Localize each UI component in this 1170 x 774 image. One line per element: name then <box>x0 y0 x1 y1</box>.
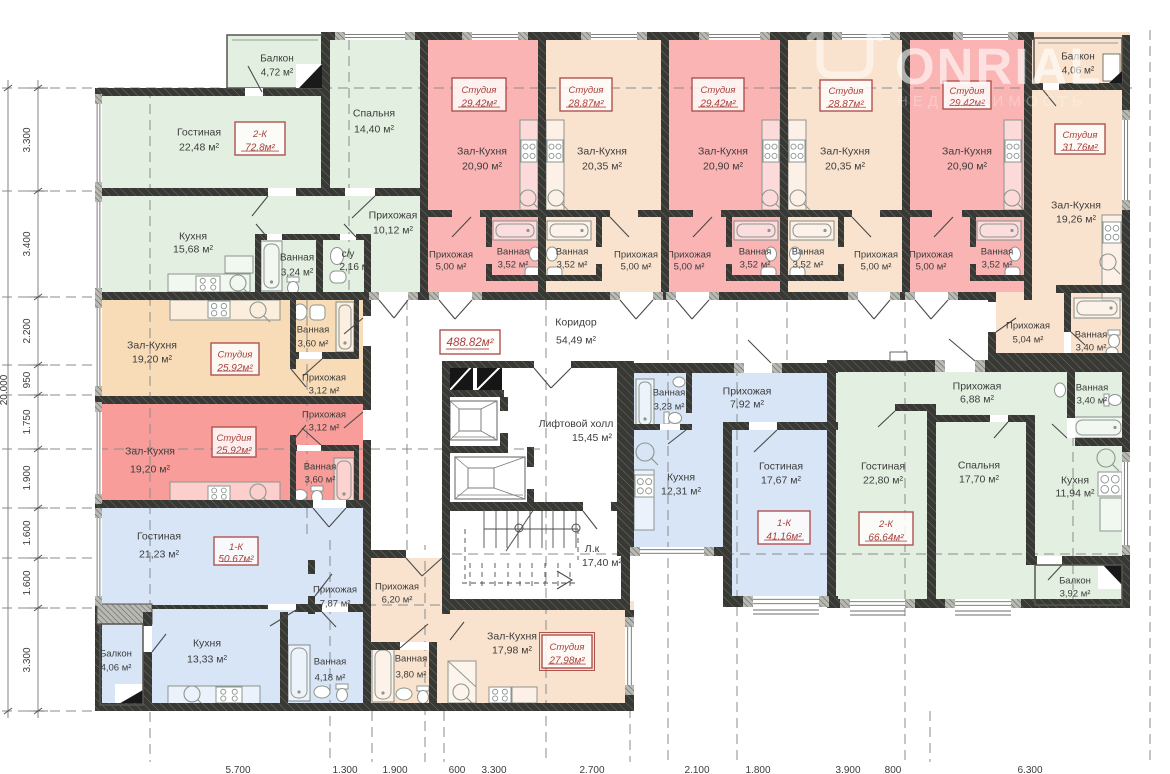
svg-text:17,67 м²: 17,67 м² <box>761 475 801 487</box>
svg-text:20,90 м²: 20,90 м² <box>703 161 743 173</box>
svg-text:Ванная: Ванная <box>304 462 337 473</box>
svg-text:Прихожая: Прихожая <box>1006 321 1050 332</box>
svg-text:1.600: 1.600 <box>22 520 33 545</box>
svg-text:6.300: 6.300 <box>1017 765 1042 774</box>
svg-text:22,48 м²: 22,48 м² <box>179 142 219 154</box>
svg-text:20.000: 20.000 <box>0 374 10 405</box>
svg-text:Прихожая: Прихожая <box>854 250 898 261</box>
svg-text:800: 800 <box>885 765 902 774</box>
svg-text:41.16м²: 41.16м² <box>766 532 802 543</box>
svg-text:3,12 м²: 3,12 м² <box>309 423 340 434</box>
svg-text:Прихожая: Прихожая <box>614 250 658 261</box>
svg-text:3,52 м²: 3,52 м² <box>498 260 529 271</box>
svg-text:19,20 м²: 19,20 м² <box>132 354 172 366</box>
svg-text:28.87м²: 28.87м² <box>567 99 604 110</box>
svg-text:Прихожая: Прихожая <box>375 582 419 593</box>
svg-text:Ванная: Ванная <box>739 247 772 258</box>
svg-text:3,52 м²: 3,52 м² <box>982 260 1013 271</box>
svg-text:3.300: 3.300 <box>481 765 506 774</box>
svg-text:3.300: 3.300 <box>22 647 33 672</box>
svg-text:Ванная: Ванная <box>1076 383 1109 394</box>
svg-text:4,06 м²: 4,06 м² <box>101 663 132 674</box>
svg-text:17,70 м²: 17,70 м² <box>959 474 999 486</box>
svg-text:Прихожая: Прихожая <box>369 210 418 222</box>
svg-text:1-К: 1-К <box>777 518 792 529</box>
svg-text:Балкон: Балкон <box>260 54 294 65</box>
svg-text:950: 950 <box>22 371 33 388</box>
svg-text:66.64м²: 66.64м² <box>868 533 904 544</box>
svg-text:31.76м²: 31.76м² <box>1062 142 1098 153</box>
svg-text:3,52 м²: 3,52 м² <box>793 260 824 271</box>
svg-text:Спальня: Спальня <box>958 460 1000 472</box>
svg-text:19,20 м²: 19,20 м² <box>130 464 170 476</box>
svg-text:Гостиная: Гостиная <box>759 461 803 473</box>
svg-text:Студия: Студия <box>462 85 497 96</box>
svg-text:Коридор: Коридор <box>555 317 597 329</box>
svg-text:Студия: Студия <box>217 433 252 444</box>
svg-text:Студия: Студия <box>569 85 604 96</box>
svg-text:Ванная: Ванная <box>297 325 330 336</box>
svg-text:Ванная: Ванная <box>981 247 1014 258</box>
svg-text:3,12 м²: 3,12 м² <box>309 386 340 397</box>
svg-text:10,12 м²: 10,12 м² <box>373 225 413 237</box>
svg-text:20,35 м²: 20,35 м² <box>582 161 622 173</box>
svg-text:488.82м²: 488.82м² <box>447 337 495 349</box>
svg-text:17,40 м²: 17,40 м² <box>582 557 622 569</box>
svg-text:3,52 м²: 3,52 м² <box>557 260 588 271</box>
svg-text:Гостиная: Гостиная <box>177 127 221 139</box>
svg-text:2.200: 2.200 <box>22 318 33 343</box>
svg-text:3.300: 3.300 <box>22 127 33 152</box>
svg-text:5,00 м²: 5,00 м² <box>436 262 467 273</box>
svg-text:1-К: 1-К <box>229 542 244 553</box>
svg-text:1.300: 1.300 <box>332 765 357 774</box>
svg-text:Ванная: Ванная <box>314 657 347 668</box>
svg-text:3,40 м²: 3,40 м² <box>1077 396 1108 407</box>
svg-text:7,92 м²: 7,92 м² <box>730 399 765 411</box>
svg-text:3,80 м²: 3,80 м² <box>396 670 427 681</box>
svg-text:3,24 м²: 3,24 м² <box>281 268 314 279</box>
svg-text:1.750: 1.750 <box>22 409 33 434</box>
svg-text:21,23 м²: 21,23 м² <box>139 549 179 561</box>
svg-text:Кухня: Кухня <box>667 472 695 484</box>
svg-text:29.42м²: 29.42м² <box>460 99 497 110</box>
svg-text:72.8м²: 72.8м² <box>245 143 275 154</box>
svg-text:25.92м²: 25.92м² <box>215 445 252 456</box>
svg-text:Ванная: Ванная <box>395 654 428 665</box>
svg-text:28.87м²: 28.87м² <box>827 99 864 110</box>
svg-text:2-К: 2-К <box>252 129 268 140</box>
svg-text:3,40 м²: 3,40 м² <box>1076 343 1107 354</box>
svg-text:6,20 м²: 6,20 м² <box>382 595 413 606</box>
svg-text:Прихожая: Прихожая <box>667 250 711 261</box>
svg-text:19,26 м²: 19,26 м² <box>1056 214 1096 226</box>
svg-text:Прихожая: Прихожая <box>302 373 346 384</box>
svg-text:7,87 м²: 7,87 м² <box>320 599 351 610</box>
svg-text:Балкон: Балкон <box>1059 576 1091 587</box>
svg-text:5.700: 5.700 <box>225 765 250 774</box>
svg-text:ONRIAL: ONRIAL <box>895 38 1102 95</box>
svg-text:12,31 м²: 12,31 м² <box>661 486 701 498</box>
svg-text:Студия: Студия <box>550 642 585 653</box>
svg-text:Ванная: Ванная <box>1075 330 1108 341</box>
svg-text:3,52 м²: 3,52 м² <box>740 260 771 271</box>
svg-text:Прихожая: Прихожая <box>953 381 1002 393</box>
svg-text:5,00 м²: 5,00 м² <box>916 262 947 273</box>
svg-text:4,72 м²: 4,72 м² <box>261 68 294 79</box>
svg-text:3,60 м²: 3,60 м² <box>298 339 329 350</box>
svg-text:с/у: с/у <box>342 249 355 260</box>
svg-text:Зал-Кухня: Зал-Кухня <box>457 146 507 158</box>
svg-text:Зал-Кухня: Зал-Кухня <box>577 146 627 158</box>
svg-text:Студия: Студия <box>829 86 864 97</box>
svg-text:5,00 м²: 5,00 м² <box>861 262 892 273</box>
svg-text:50.67м²: 50.67м² <box>218 554 254 565</box>
svg-text:Прихожая: Прихожая <box>313 585 357 596</box>
svg-text:Кухня: Кухня <box>179 231 207 243</box>
svg-text:20,90 м²: 20,90 м² <box>462 161 502 173</box>
svg-text:15,68 м²: 15,68 м² <box>173 244 213 256</box>
svg-text:600: 600 <box>449 765 466 774</box>
svg-text:Балкон: Балкон <box>100 649 132 660</box>
svg-text:Зал-Кухня: Зал-Кухня <box>487 631 537 643</box>
svg-text:3,23 м²: 3,23 м² <box>654 402 685 413</box>
svg-text:Спальня: Спальня <box>353 108 395 120</box>
svg-text:Зал-Кухня: Зал-Кухня <box>125 446 175 458</box>
svg-text:1.800: 1.800 <box>745 765 770 774</box>
svg-text:Зал-Кухня: Зал-Кухня <box>820 146 870 158</box>
svg-text:5,00 м²: 5,00 м² <box>621 262 652 273</box>
svg-text:1.900: 1.900 <box>382 765 407 774</box>
svg-text:Ванная: Ванная <box>653 388 686 399</box>
svg-text:Прихожая: Прихожая <box>302 410 346 421</box>
svg-text:14,40 м²: 14,40 м² <box>354 124 394 136</box>
svg-text:27.98м²: 27.98м² <box>548 656 585 667</box>
svg-text:2-К: 2-К <box>878 519 894 530</box>
svg-text:Зал-Кухня: Зал-Кухня <box>1051 200 1101 212</box>
svg-text:Зал-Кухня: Зал-Кухня <box>942 146 992 158</box>
svg-text:20,35 м²: 20,35 м² <box>825 161 865 173</box>
svg-text:Прихожая: Прихожая <box>723 386 772 398</box>
svg-text:3.900: 3.900 <box>835 765 860 774</box>
svg-text:17,98 м²: 17,98 м² <box>492 645 532 657</box>
svg-text:1.900: 1.900 <box>22 465 33 490</box>
svg-text:Студия: Студия <box>1063 130 1098 141</box>
svg-text:Гостиная: Гостиная <box>137 531 181 543</box>
svg-text:22,80 м²: 22,80 м² <box>863 475 903 487</box>
svg-text:3,92 м²: 3,92 м² <box>1060 589 1091 600</box>
svg-text:Студия: Студия <box>701 85 736 96</box>
svg-text:29.42м²: 29.42м² <box>699 99 736 110</box>
svg-text:3.400: 3.400 <box>22 231 33 256</box>
svg-text:Прихожая: Прихожая <box>909 250 953 261</box>
svg-text:1.600: 1.600 <box>22 570 33 595</box>
svg-text:5,00 м²: 5,00 м² <box>674 262 705 273</box>
svg-text:НЕДВИЖИМОСТЬ: НЕДВИЖИМОСТЬ <box>897 93 1087 110</box>
svg-text:6,88 м²: 6,88 м² <box>960 394 995 406</box>
svg-text:25.92м²: 25.92м² <box>216 363 253 374</box>
svg-text:15,45 м²: 15,45 м² <box>572 432 612 444</box>
svg-text:Гостиная: Гостиная <box>861 461 905 473</box>
svg-text:Ванная: Ванная <box>280 253 314 264</box>
svg-text:Зал-Кухня: Зал-Кухня <box>698 146 748 158</box>
svg-text:Л.к: Л.к <box>585 543 600 555</box>
svg-text:Зал-Кухня: Зал-Кухня <box>127 340 177 352</box>
svg-text:11,94 м²: 11,94 м² <box>1055 488 1095 500</box>
svg-text:Ванная: Ванная <box>556 247 589 258</box>
svg-text:3,60 м²: 3,60 м² <box>305 475 336 486</box>
svg-text:Студия: Студия <box>218 350 253 361</box>
svg-text:Лифтовой холл: Лифтовой холл <box>539 418 614 430</box>
svg-text:2.700: 2.700 <box>579 765 604 774</box>
svg-text:Кухня: Кухня <box>193 638 221 650</box>
svg-text:Кухня: Кухня <box>1061 475 1089 487</box>
svg-text:2,16 м: 2,16 м <box>339 262 368 273</box>
svg-text:Прихожая: Прихожая <box>429 250 473 261</box>
svg-text:54,49 м²: 54,49 м² <box>556 335 596 347</box>
svg-text:13,33 м²: 13,33 м² <box>187 654 227 666</box>
svg-text:4,18 м²: 4,18 м² <box>315 673 346 684</box>
svg-text:20,90 м²: 20,90 м² <box>947 161 987 173</box>
svg-text:5,04 м²: 5,04 м² <box>1013 335 1044 346</box>
svg-text:Ванная: Ванная <box>792 247 825 258</box>
svg-text:2.100: 2.100 <box>684 765 709 774</box>
svg-text:Ванная: Ванная <box>497 247 530 258</box>
